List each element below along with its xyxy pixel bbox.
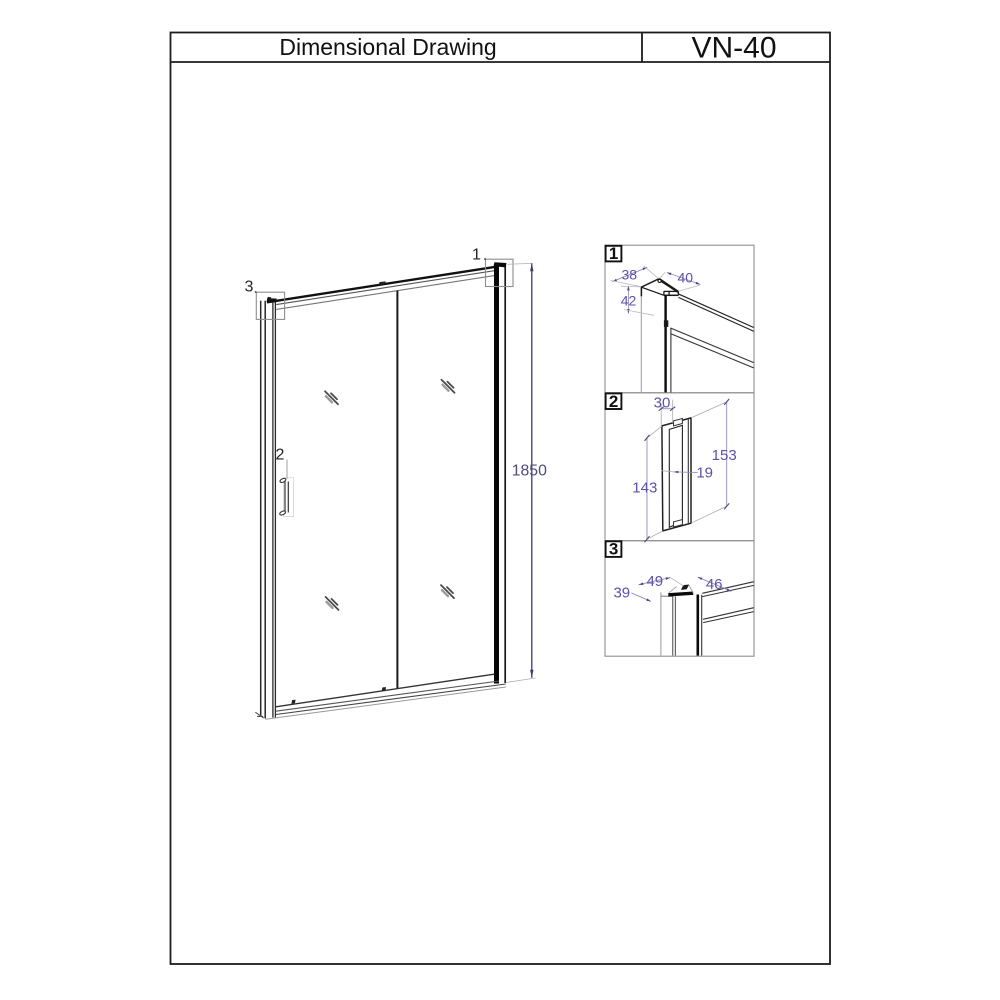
svg-text:VN-40: VN-40 — [691, 32, 776, 65]
svg-text:2: 2 — [609, 392, 618, 411]
svg-text:153: 153 — [712, 447, 737, 464]
svg-text:3: 3 — [245, 279, 254, 296]
svg-text:1: 1 — [472, 246, 481, 263]
svg-text:Dimensional Drawing: Dimensional Drawing — [279, 34, 496, 60]
svg-text:3: 3 — [609, 540, 618, 559]
svg-text:49: 49 — [646, 573, 663, 590]
svg-text:19: 19 — [696, 465, 713, 482]
svg-text:143: 143 — [632, 480, 657, 497]
svg-text:38: 38 — [622, 267, 638, 283]
svg-text:39: 39 — [613, 584, 630, 601]
svg-text:46: 46 — [706, 576, 723, 593]
svg-text:40: 40 — [678, 270, 694, 286]
svg-text:1: 1 — [609, 244, 618, 263]
svg-text:1850: 1850 — [512, 463, 547, 480]
svg-text:2: 2 — [276, 447, 285, 464]
svg-text:42: 42 — [621, 293, 637, 309]
svg-text:30: 30 — [654, 395, 671, 412]
